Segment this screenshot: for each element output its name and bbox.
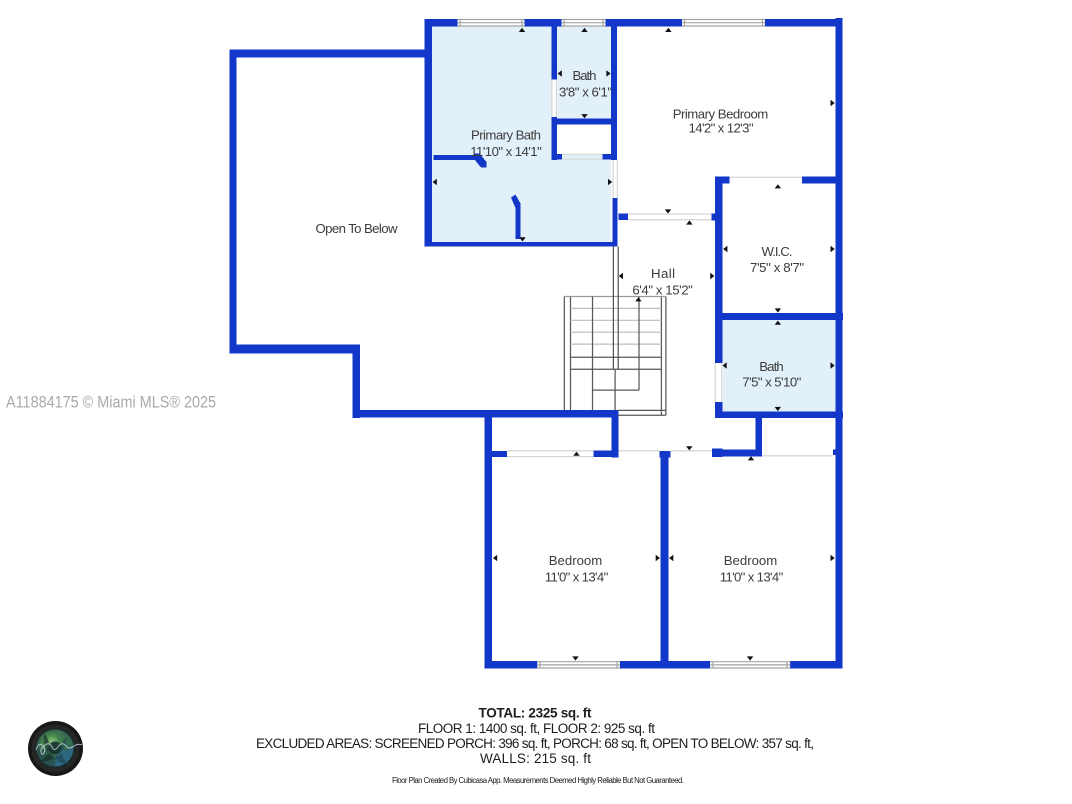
- svg-text:W.I.C.: W.I.C.: [762, 244, 793, 259]
- svg-text:Floor Plan Created By Cubicasa: Floor Plan Created By Cubicasa App. Meas…: [392, 776, 684, 785]
- svg-text:14'2" x 12'3": 14'2" x 12'3": [689, 121, 754, 136]
- svg-text:11'0" x 13'4": 11'0" x 13'4": [545, 570, 609, 585]
- svg-text:WALLS: 215 sq. ft: WALLS: 215 sq. ft: [480, 751, 591, 766]
- svg-text:11'0" x 13'4": 11'0" x 13'4": [720, 570, 784, 585]
- svg-text:Hall: Hall: [651, 266, 675, 281]
- svg-text:EXCLUDED AREAS: SCREENED PORCH: EXCLUDED AREAS: SCREENED PORCH: 396 sq. …: [256, 736, 814, 751]
- svg-text:TOTAL: 2325 sq. ft: TOTAL: 2325 sq. ft: [479, 706, 593, 721]
- svg-text:Bedroom: Bedroom: [549, 553, 603, 568]
- svg-text:11'10" x 14'1": 11'10" x 14'1": [470, 144, 542, 159]
- svg-text:Bath: Bath: [759, 359, 784, 374]
- svg-text:Bedroom: Bedroom: [724, 553, 778, 568]
- svg-text:FLOOR 1: 1400 sq. ft, FLOOR 2:: FLOOR 1: 1400 sq. ft, FLOOR 2: 925 sq. f…: [418, 721, 655, 736]
- svg-text:7'5" x 5'10": 7'5" x 5'10": [742, 375, 801, 390]
- svg-text:7'5" x 8'7": 7'5" x 8'7": [750, 260, 804, 275]
- svg-text:Open To Below: Open To Below: [316, 221, 398, 236]
- svg-text:Primary Bath: Primary Bath: [471, 128, 541, 143]
- svg-text:Primary Bedroom: Primary Bedroom: [673, 107, 769, 122]
- svg-text:Bath: Bath: [573, 68, 597, 83]
- svg-text:A11884175 © Miami MLS® 2025: A11884175 © Miami MLS® 2025: [6, 394, 216, 412]
- svg-text:3'8" x 6'1": 3'8" x 6'1": [559, 85, 612, 100]
- svg-text:6'4" x 15'2": 6'4" x 15'2": [632, 283, 693, 298]
